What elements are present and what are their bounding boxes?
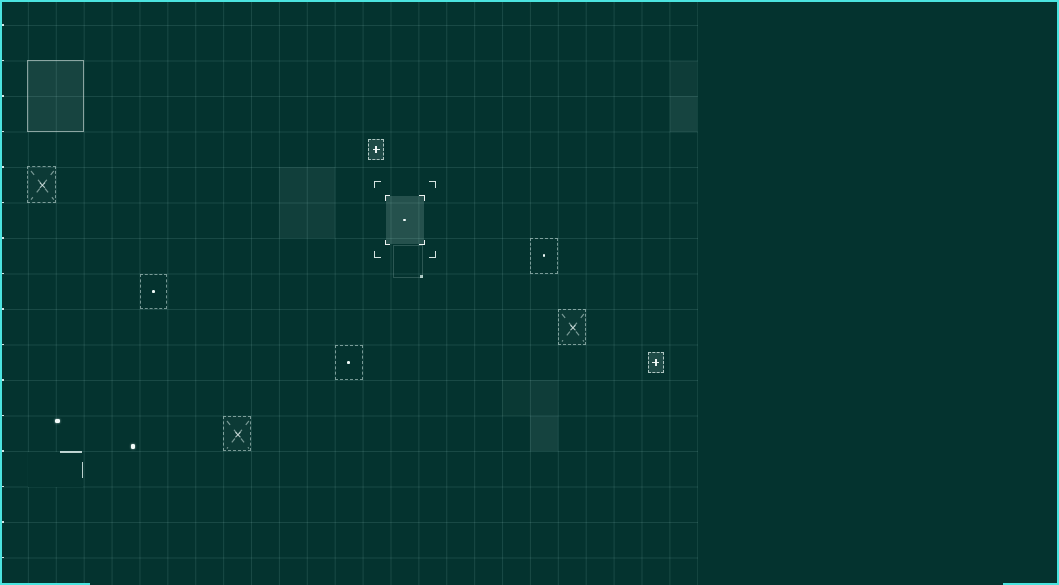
dot-cell-2[interactable] [140, 274, 168, 310]
cleared-edge-top [60, 451, 83, 453]
unit-dot-2 [131, 444, 136, 449]
unit-dot-1 [55, 419, 60, 424]
target-cursor[interactable] [374, 181, 436, 259]
cross-icon [28, 167, 57, 204]
dot-cell-3[interactable] [335, 345, 363, 381]
frame-left [0, 0, 2, 585]
plus-chip-1[interactable] [368, 139, 385, 160]
dot-cell-1[interactable] [530, 238, 558, 274]
frame-top [0, 0, 1059, 2]
pending-cell-outline [393, 245, 423, 278]
tick-icon [385, 240, 391, 246]
game-stage [0, 0, 1059, 585]
plus-chip-2[interactable] [648, 352, 665, 373]
bracket-bottom-left-icon [374, 251, 381, 258]
bracket-bottom-right-icon [429, 251, 436, 258]
cross-cell-1[interactable] [27, 166, 56, 203]
selection-highlight [386, 196, 424, 244]
bracket-top-left-icon [374, 181, 381, 188]
outlined-region[interactable] [27, 60, 84, 132]
cleared-patch [28, 452, 83, 487]
grid-canvas[interactable] [0, 0, 698, 585]
bracket-top-right-icon [429, 181, 436, 188]
cross-cell-2[interactable] [558, 309, 586, 345]
blank-side-panel [698, 0, 1059, 585]
tick-icon [419, 195, 425, 201]
cross-cell-3[interactable] [223, 416, 251, 452]
cross-icon [224, 417, 252, 453]
cleared-edge-right [82, 462, 84, 479]
tick-icon [385, 195, 391, 201]
cross-icon [559, 310, 587, 346]
